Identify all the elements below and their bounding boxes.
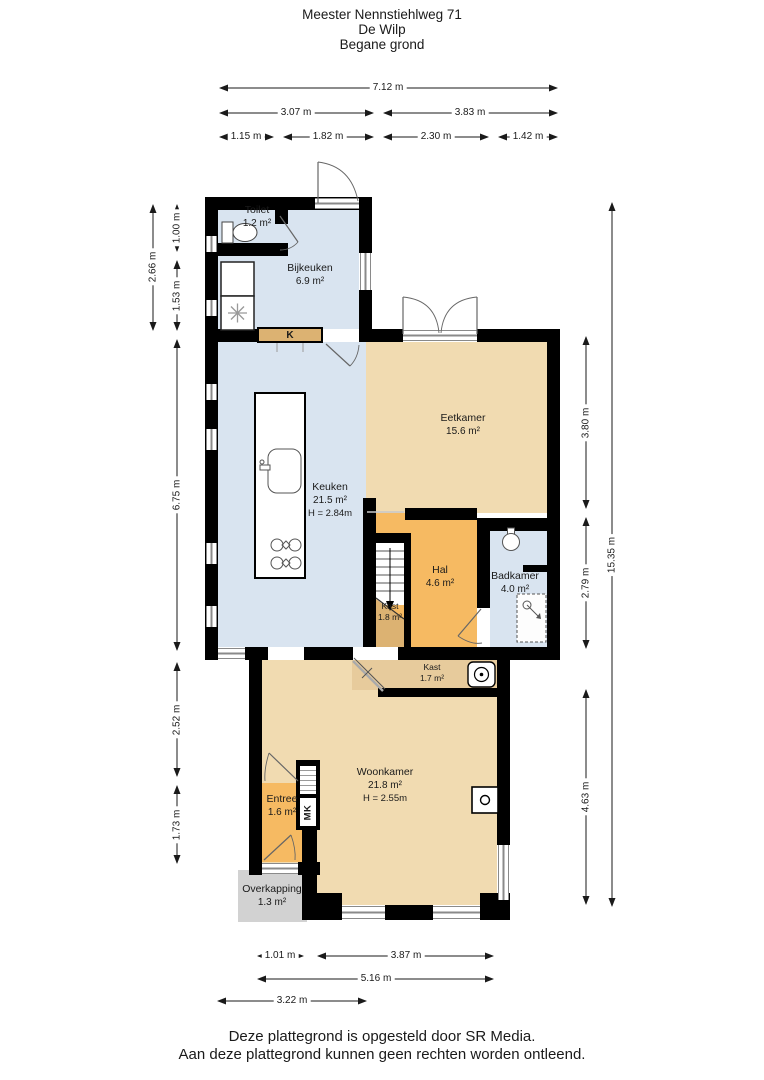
room-area: 4.6 m² [426, 577, 454, 590]
dim-label: 1.82 m [310, 131, 347, 142]
room-area: 1.7 m² [420, 673, 444, 684]
room-label-hal: Hal 4.6 m² [426, 564, 454, 590]
room-height: H = 2.84m [308, 507, 352, 520]
counter-icon [221, 262, 254, 296]
dim-label: 2.79 m [581, 565, 592, 602]
room-area: 21.5 m² [308, 494, 352, 507]
staircase-icon [376, 543, 404, 647]
floorplan-page: Meester Nennstiehlweg 71 De Wilp Begane … [0, 0, 764, 1080]
washing-machine-icon [221, 296, 254, 330]
washbasin-icon [503, 528, 520, 551]
room-area: 1.3 m² [242, 896, 302, 909]
dim-label: 3.83 m [452, 107, 489, 118]
room-label-kast-onder-trap: Kast 1.8 m² [378, 601, 402, 622]
room-area: 1.6 m² [267, 806, 298, 819]
shower-icon [517, 594, 546, 642]
dim-label: 3.22 m [274, 995, 311, 1006]
dim-label: 1.73 m [172, 807, 183, 844]
dim-label: 1.42 m [510, 131, 547, 142]
dim-label: 1.15 m [228, 131, 265, 142]
entree-front-door [264, 835, 291, 860]
room-label-badkamer: Badkamer 4.0 m² [491, 570, 539, 596]
room-area: 1.2 m² [243, 217, 271, 230]
dim-label: 4.63 m [581, 779, 592, 816]
dim-label: 2.30 m [418, 131, 455, 142]
title-address: Meester Nennstiehlweg 71 [0, 7, 764, 22]
dim-label: 5.16 m [358, 973, 395, 984]
room-label-entree: Entree 1.6 m² [267, 793, 298, 819]
room-label-keuken: Keuken 21.5 m² H = 2.84m [308, 481, 352, 520]
dim-label: 3.07 m [278, 107, 315, 118]
room-name: Woonkamer [357, 766, 413, 779]
room-name: Bijkeuken [287, 262, 333, 275]
dim-label: 6.75 m [172, 477, 183, 514]
kast-sliding-door [353, 658, 385, 691]
dim-label: 2.66 m [148, 249, 159, 286]
dim-label: 2.52 m [172, 702, 183, 739]
room-name: Entree [267, 793, 298, 806]
dim-label: 1.00 m [172, 210, 183, 247]
plan-title: Meester Nennstiehlweg 71 De Wilp Begane … [0, 7, 764, 52]
boiler-icon [468, 662, 495, 687]
dim-label: 1.01 m [262, 950, 299, 961]
badkamer-door [458, 609, 481, 636]
room-name: Badkamer [491, 570, 539, 583]
dim-label-height-total: 15.35 m [607, 534, 618, 576]
toilet-door [280, 216, 298, 242]
disclaimer-line2: Aan deze plattegrond kunnen geen rechten… [0, 1046, 764, 1064]
room-label-eetkamer: Eetkamer 15.6 m² [441, 412, 486, 438]
room-name: Hal [426, 564, 454, 577]
room-height: H = 2.55m [357, 792, 413, 805]
french-doors [403, 297, 477, 334]
room-name: Kast [420, 662, 444, 673]
room-label-woonkamer: Woonkamer 21.8 m² H = 2.55m [357, 766, 413, 805]
room-area: 4.0 m² [491, 583, 539, 596]
room-area: 6.9 m² [287, 275, 333, 288]
title-floor: Begane grond [0, 37, 764, 52]
room-name: Toilet [243, 204, 271, 217]
room-name: Kast [378, 601, 402, 612]
room-name: Keuken [308, 481, 352, 494]
title-city: De Wilp [0, 22, 764, 37]
room-label-kast: Kast 1.7 m² [420, 662, 444, 683]
room-area: 15.6 m² [441, 425, 486, 438]
room-label-overkapping: Overkapping 1.3 m² [242, 883, 302, 909]
room-area: 21.8 m² [357, 779, 413, 792]
fireplace-icon [472, 787, 498, 813]
room-name: Overkapping [242, 883, 302, 896]
entree-inner-door [269, 753, 298, 781]
room-area: 1.8 m² [378, 612, 402, 623]
disclaimer-line1: Deze plattegrond is opgesteld door SR Me… [0, 1028, 764, 1046]
plan-graphics [0, 0, 764, 1080]
room-name: Eetkamer [441, 412, 486, 425]
dim-label: 3.87 m [388, 950, 425, 961]
disclaimer: Deze plattegrond is opgesteld door SR Me… [0, 1028, 764, 1064]
dim-label: 1.53 m [172, 278, 183, 315]
dim-label-width-total: 7.12 m [370, 82, 407, 93]
dim-label: 3.80 m [581, 405, 592, 442]
room-label-bijkeuken: Bijkeuken 6.9 m² [287, 262, 333, 288]
room-label-toilet: Toilet 1.2 m² [243, 204, 271, 230]
keuken-door [326, 344, 350, 366]
